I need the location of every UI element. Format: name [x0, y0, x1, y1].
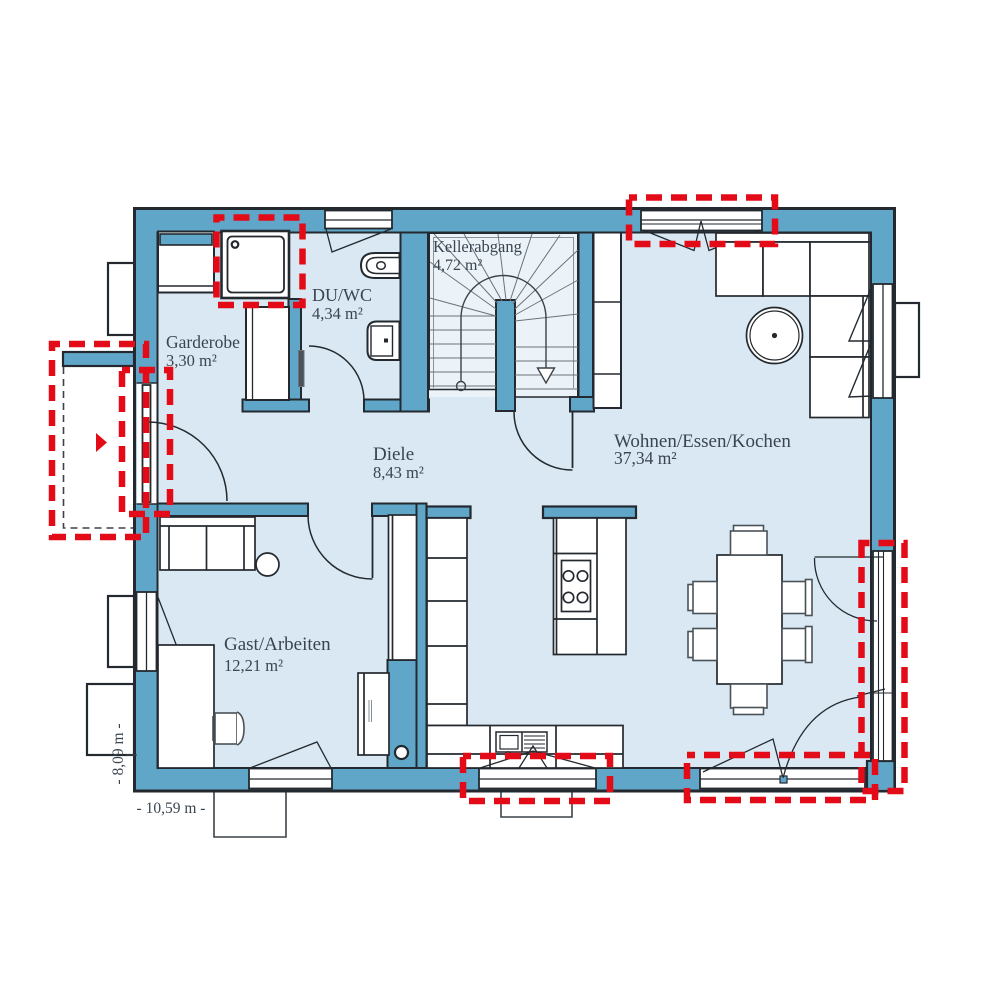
svg-text:Diele: Diele	[373, 444, 414, 465]
svg-text:12,21 m²: 12,21 m²	[224, 656, 283, 675]
svg-text:37,34 m²: 37,34 m²	[614, 448, 677, 468]
svg-text:4,72 m²: 4,72 m²	[433, 257, 482, 274]
svg-text:3,30 m²: 3,30 m²	[166, 351, 217, 370]
svg-text:- 8,09 m -: - 8,09 m -	[110, 723, 127, 784]
svg-text:Gast/Arbeiten: Gast/Arbeiten	[224, 634, 331, 655]
svg-text:8,43 m²: 8,43 m²	[373, 463, 424, 482]
svg-text:4,34 m²: 4,34 m²	[312, 304, 363, 323]
svg-text:DU/WC: DU/WC	[312, 285, 372, 305]
svg-text:Kellerabgang: Kellerabgang	[433, 237, 522, 256]
svg-text:Garderobe: Garderobe	[166, 332, 240, 352]
svg-text:- 10,59 m -: - 10,59 m -	[137, 800, 206, 817]
